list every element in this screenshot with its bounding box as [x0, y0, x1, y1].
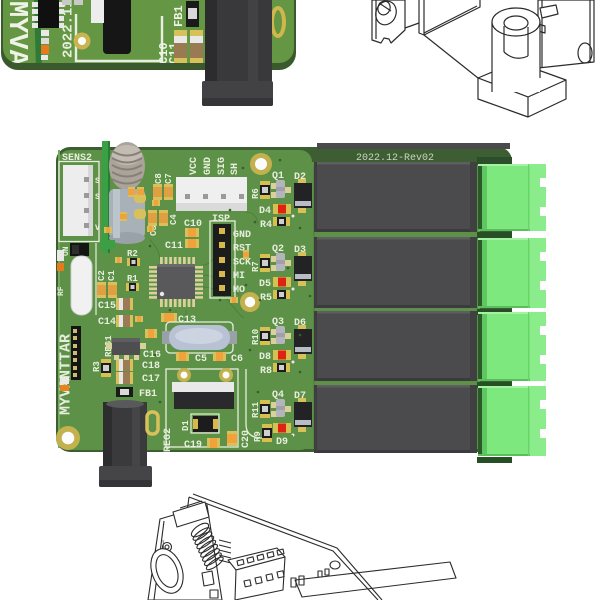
svg-text:D4: D4	[259, 206, 271, 217]
svg-text:GND: GND	[203, 157, 214, 175]
svg-text:C8: C8	[154, 173, 164, 184]
svg-text:Q3: Q3	[272, 317, 284, 328]
svg-text:SIG: SIG	[217, 157, 228, 175]
svg-text:C1: C1	[107, 270, 117, 281]
svg-text:GND: GND	[233, 230, 251, 241]
svg-text:C5: C5	[195, 354, 207, 365]
svg-text:C14: C14	[98, 317, 116, 328]
svg-text:R2: R2	[127, 249, 138, 259]
svg-text:C15: C15	[98, 301, 116, 312]
svg-text:R7: R7	[251, 261, 261, 272]
svg-text:MO: MO	[233, 285, 245, 296]
svg-text:2022.11-: 2022.11-	[61, 0, 77, 58]
svg-text:C20: C20	[241, 430, 252, 448]
svg-text:D7: D7	[294, 391, 306, 402]
svg-text:R3: R3	[92, 361, 102, 372]
svg-text:ISP: ISP	[212, 214, 230, 225]
svg-text:S: S	[95, 177, 100, 186]
svg-text:MYVANTTAR: MYVANTTAR	[1, 1, 31, 148]
svg-text:MI: MI	[233, 271, 245, 282]
svg-text:R10: R10	[251, 329, 261, 345]
svg-text:C13: C13	[178, 315, 196, 326]
svg-text:Q2: Q2	[272, 244, 284, 255]
svg-text:C7: C7	[164, 173, 174, 184]
svg-text:SH: SH	[230, 163, 241, 175]
svg-text:R6: R6	[251, 188, 261, 199]
svg-text:V: V	[95, 224, 100, 233]
svg-text:C16: C16	[143, 350, 161, 361]
svg-text:REG2: REG2	[163, 428, 174, 452]
svg-text:Q1: Q1	[272, 171, 284, 182]
svg-text:R4: R4	[260, 220, 272, 231]
svg-text:C2: C2	[97, 270, 107, 281]
svg-text:C18: C18	[142, 361, 160, 372]
svg-text:D2: D2	[294, 172, 306, 183]
svg-text:D8: D8	[259, 352, 271, 363]
svg-text:D9: D9	[276, 437, 288, 448]
svg-text:R5: R5	[260, 293, 272, 304]
svg-text:C6: C6	[231, 354, 243, 365]
svg-text:Q4: Q4	[272, 390, 284, 401]
svg-text:R11: R11	[251, 401, 261, 418]
svg-text:C19: C19	[184, 440, 202, 451]
svg-text:FB1: FB1	[172, 5, 186, 27]
svg-text:D6: D6	[294, 318, 306, 329]
svg-text:R8: R8	[260, 366, 272, 377]
svg-text:C11: C11	[165, 241, 183, 252]
svg-text:SCK: SCK	[233, 257, 251, 268]
svg-text:SENS2: SENS2	[62, 153, 92, 164]
svg-text:D3: D3	[294, 245, 306, 256]
svg-text:D1: D1	[181, 420, 191, 431]
svg-text:C17: C17	[142, 374, 160, 385]
svg-text:RF: RF	[57, 286, 66, 296]
svg-text:R9: R9	[253, 431, 263, 442]
svg-text:R1: R1	[127, 274, 138, 284]
svg-text:D5: D5	[259, 279, 271, 290]
svg-text:VCC: VCC	[189, 157, 200, 175]
svg-text:S: S	[95, 193, 100, 202]
svg-text:C4: C4	[169, 214, 179, 225]
svg-text:FB1: FB1	[139, 389, 157, 400]
